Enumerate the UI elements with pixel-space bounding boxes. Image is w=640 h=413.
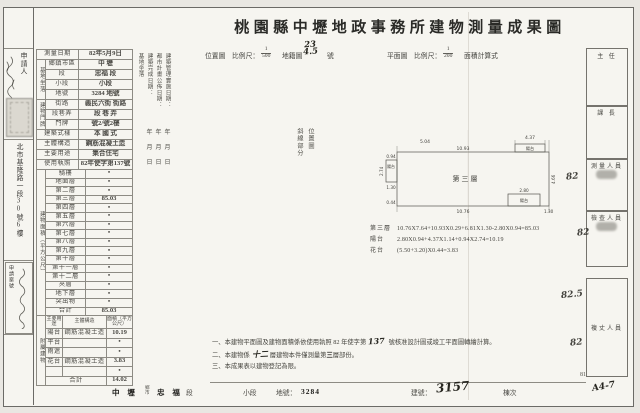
annex-row: 陽台鋼筋混凝土造10.19 <box>37 329 133 339</box>
group-label: 建物面積（平方公尺） <box>37 170 46 316</box>
ymd-char: 月 <box>145 142 154 151</box>
note-line: 二、本建物係十二層建物本件僅測量第三層部份。 <box>212 349 358 360</box>
info-row: 使用執照82年使字第137號 <box>37 160 133 170</box>
signoff-label: 測量人員 <box>587 161 627 170</box>
floor-row: 第四層• <box>37 204 133 213</box>
annex-structure: 鋼筋混凝土造 <box>63 357 107 367</box>
field-value: 號2/號2樓 <box>79 120 133 130</box>
footer-district: 中 壢 <box>112 387 138 398</box>
info-row: 建築式樣本 國 式 <box>37 130 133 140</box>
dim-bottom-right-width: 2.80 <box>519 188 529 193</box>
floor-plan-label: 平面圖 <box>387 50 407 60</box>
handwritten-sheet-number: 23 4.5 <box>303 42 319 57</box>
applicant-address: 北市基隆路一段30號6樓 <box>13 143 23 258</box>
info-row: 門牌號2/號2樓 <box>37 120 133 130</box>
scanned-survey-form: 桃園縣中壢地政事務所建物測量成果圖 位置圖 比例尺： 1 500 地籍圖 23 … <box>0 0 640 413</box>
dim-left-width: 0.94 <box>386 154 396 159</box>
floor-row: 第八層• <box>37 238 133 247</box>
annex-area: • <box>107 338 133 348</box>
scale-fraction-1: 1 500 <box>261 47 271 60</box>
ymd-char: 年 <box>163 127 172 136</box>
annex-row: 合計14.02 <box>37 376 133 386</box>
floor-row: 第十層• <box>37 255 133 264</box>
applicant-label: 申請人 <box>17 52 27 75</box>
handwritten-case-number <box>17 267 30 329</box>
dim-top: 10.93 <box>457 146 470 152</box>
date-field: 基地坐落 <box>136 53 145 171</box>
field-label: 段 <box>46 70 79 80</box>
note-text: 137 <box>366 335 387 346</box>
footer-building-no-label: 建號： <box>411 387 431 397</box>
info-row: 段忠福 段 <box>37 70 133 80</box>
floor-row: 地面層• <box>37 178 133 187</box>
floor-area-table: 建物面積（平方公尺）騎樓•地面層•第二層•第三層85.03第四層•第五層•第六層… <box>36 169 133 316</box>
floor-value: • <box>86 298 133 307</box>
floor-value: • <box>86 178 133 187</box>
floor-label: 第四層 <box>46 204 86 213</box>
calc-row: 花台(5.50+3.20)X0.44=3.83 <box>370 239 458 257</box>
floor-value: • <box>86 281 133 290</box>
info-row: 地號3284 地號 <box>37 90 133 100</box>
floor-value: 85.03 <box>86 195 133 204</box>
floor-label: 第三層 <box>46 195 86 204</box>
field-label: 主要用途 <box>37 150 79 160</box>
column-header: 主體構造 <box>63 316 107 329</box>
floor-label: 第五層 <box>46 212 86 221</box>
strip-rule <box>4 48 33 49</box>
area-formula-label: 面積計算式 <box>464 50 498 60</box>
field-value: 忠福 段 <box>79 70 133 80</box>
ymd-char: 日 <box>163 157 172 166</box>
ymd-char: 月 <box>163 142 172 151</box>
floor-label: 地下層 <box>46 290 86 299</box>
floor-value: • <box>86 204 133 213</box>
annex-structure <box>63 367 107 377</box>
balcony-left-label-1: 陽台 <box>387 163 395 169</box>
floor-value: • <box>86 170 133 179</box>
scale1-denominator: 500 <box>261 53 271 60</box>
calc-formula: (5.50+3.20)X0.44=3.83 <box>397 248 458 254</box>
field-label: 街路 <box>46 100 79 110</box>
annex-structure <box>63 338 107 348</box>
floor-value: • <box>86 238 133 247</box>
strip-rule <box>4 139 33 140</box>
footer-section: 忠 福 <box>157 387 183 398</box>
column-header: 面積（平方公尺） <box>107 316 133 329</box>
ymd-char: 年 <box>145 127 154 136</box>
floor-label: 騎樓 <box>46 170 86 179</box>
field-label: 主體構造 <box>37 140 79 150</box>
floor-label: 第十一層 <box>46 264 86 273</box>
note-text: 號核准設計圖或竣工平面圖轉繪計算。 <box>387 339 496 346</box>
date-field: 都市計畫公佈日期：年月日 <box>154 53 163 171</box>
strip-rule <box>4 334 33 335</box>
floor-label: 第二層 <box>46 187 86 196</box>
floor-label: 第六層 <box>46 221 86 230</box>
dim-bottom: 10.76 <box>457 209 470 215</box>
floor-row: 第五層• <box>37 212 133 221</box>
group-label: 建物門牌 <box>37 100 46 130</box>
info-row: 主要用途集合住宅 <box>37 150 133 160</box>
field-label: 測量日期 <box>37 50 79 60</box>
date-field: 建築管理實施日期：年月日 <box>163 53 172 171</box>
info-row: 主體構造鋼筋混凝土造 <box>37 140 133 150</box>
footer-land-no-label: 地號： <box>276 387 296 397</box>
floor-row: 第七層• <box>37 230 133 239</box>
floor-row: 第六層• <box>37 221 133 230</box>
footer-city: 市 <box>145 390 150 395</box>
info-row: 小段小段 <box>37 80 133 90</box>
location-note-left: 斜線部分 <box>295 128 304 157</box>
field-value: 中 壢 <box>79 60 133 70</box>
stamp-mark <box>596 222 617 231</box>
floor-value: • <box>86 212 133 221</box>
floor-value: • <box>86 187 133 196</box>
note-text: 二、本建物係 <box>212 352 250 359</box>
note-line: 三、本成果表以建物登記為限。 <box>212 361 300 370</box>
scale-label-1: 比例尺： <box>232 50 259 60</box>
calc-label: 花台 <box>370 245 397 254</box>
balcony-top-label: 陽台 <box>526 145 534 152</box>
handwritten-mark: 82 <box>566 171 580 182</box>
date-field-label: 建築管理實施日期： <box>164 53 172 108</box>
floor-label: 第十層 <box>46 255 86 264</box>
floor-row: 第九層• <box>37 247 133 256</box>
handwritten-mark: 82 <box>570 337 584 348</box>
annex-use: 花台 <box>46 357 63 367</box>
floor-row: 第三層85.03 <box>37 195 133 204</box>
dim-left-low: 1.30 <box>386 185 396 190</box>
case-number-box: 申請案號 <box>5 262 33 334</box>
floor-value: • <box>86 247 133 256</box>
floor-row: 建物面積（平方公尺）騎樓• <box>37 170 133 179</box>
signoff-label: 主 任 <box>587 51 627 60</box>
annex-label: 合計 <box>46 376 107 386</box>
floor-value: • <box>86 290 133 299</box>
cadastral-map-label: 地籍圖 <box>282 50 302 60</box>
floor-value: • <box>86 230 133 239</box>
annex-use: 陽台 <box>46 329 63 339</box>
field-label: 地號 <box>46 90 79 100</box>
footer-unit-label: 棟次 <box>503 387 517 397</box>
date-field: 建築完成日期：年月日 <box>145 53 154 171</box>
scale2-denominator: 200 <box>443 53 453 60</box>
sheet-number-bottom: 4.5 <box>303 47 318 58</box>
dim-right: 4.66 <box>551 174 556 184</box>
floor-label: 夾層 <box>46 281 86 290</box>
info-row: 測量日期82年5月9日 <box>37 50 133 60</box>
footer-land-no: 3284 <box>301 387 320 396</box>
signoff-box: 測量人員 <box>586 158 628 212</box>
field-label: 門牌 <box>46 120 79 130</box>
field-value: 本 國 式 <box>79 130 133 140</box>
floor-label: 第十二層 <box>46 273 86 282</box>
date-field-label: 都市計畫公佈日期： <box>155 53 163 108</box>
field-value: 鋼筋混凝土造 <box>79 140 133 150</box>
floor-plan-title: 第三層 <box>453 174 480 183</box>
floor-row: 第十一層• <box>37 264 133 273</box>
signoff-label: 複丈人員 <box>587 323 627 332</box>
footer-section-suffix: 段 <box>186 387 193 397</box>
annex-area: 14.02 <box>107 376 133 386</box>
note-text: 層部份。 <box>333 352 358 359</box>
annex-row: 平台• <box>37 338 133 348</box>
floor-label: 第八層 <box>46 238 86 247</box>
ymd-char: 日 <box>154 157 163 166</box>
note-text: 十二 <box>250 348 271 360</box>
stamp-mark <box>596 170 617 179</box>
field-label: 段巷弄 <box>46 110 79 120</box>
form-title: 桃園縣中壢地政事務所建物測量成果圖 <box>205 16 595 37</box>
dim-left-height: 2.74 <box>379 166 384 176</box>
annex-row: 雨遮• <box>37 348 133 358</box>
sheet-number-suffix: 號 <box>327 50 334 60</box>
signoff-label: 課 長 <box>587 108 627 117</box>
note-text: 層建物本件僅測量第 <box>270 352 327 359</box>
annex-structure <box>63 348 107 358</box>
balcony-bottom-label: 陽台 <box>520 197 528 204</box>
column-header: 主要用途 <box>46 316 63 329</box>
signoff-box: 檢查人員 <box>586 210 628 267</box>
floor-row: 第十二層• <box>37 273 133 282</box>
dim-top-left: 5.04 <box>420 139 430 145</box>
info-table: 測量日期82年5月9日基地坐落鄉鎮市區中 壢段忠福 段小段小段地號3284 地號… <box>36 49 133 170</box>
field-value: 段 巷 弄 <box>79 110 133 120</box>
dim-bottom-right-height: 1.30 <box>544 209 554 214</box>
date-field-label: 建築完成日期： <box>146 53 154 96</box>
group-label: 基地坐落 <box>37 60 46 100</box>
note-text: 三、本成果表以建物登記為限。 <box>212 363 300 370</box>
signoff-box: 主 任 <box>586 48 628 107</box>
scale-label-2: 比例尺： <box>414 50 441 60</box>
applicant-seal-stamp <box>6 98 33 137</box>
footer-township-city: 鄉 市 <box>145 385 150 396</box>
floor-value: • <box>86 273 133 282</box>
floor-plan-drawing: 5.04 10.93 4.37 陽台 0.94 2.74 陽台 1.30 0.4… <box>378 130 568 218</box>
floor-row: 突出物• <box>37 298 133 307</box>
dim-top-right: 4.37 <box>525 135 535 141</box>
floor-label: 第九層 <box>46 247 86 256</box>
floor-row: 夾層• <box>37 281 133 290</box>
dim-left-bottom: 0.44 <box>386 200 396 205</box>
location-note-right: 位置圖 <box>306 128 315 150</box>
note-line: 一、本建物平面圖及建物面積係依使用執照 82 年使字第137 號核准設計圖或竣工… <box>212 336 496 346</box>
ymd-char: 月 <box>154 142 163 151</box>
floor-row: 第二層• <box>37 187 133 196</box>
field-value: 82年5月9日 <box>79 50 133 60</box>
ymd-char: 日 <box>145 157 154 166</box>
strip-rule <box>4 260 33 261</box>
footer-small-section: 小段 <box>243 387 257 397</box>
signoff-box: 課 長 <box>586 105 628 160</box>
handwritten-mark: 82 <box>577 227 591 238</box>
floor-label: 地面層 <box>46 178 86 187</box>
handwritten-building-no: 3157 <box>435 379 469 396</box>
annex-row: • <box>37 367 133 377</box>
footer-rule <box>210 382 586 383</box>
annex-structure: 鋼筋混凝土造 <box>63 329 107 339</box>
field-label: 鄉鎮市區 <box>46 60 79 70</box>
field-value: 義民六街 街路 <box>79 100 133 110</box>
annex-building-table: 附屬建物主要用途主體構造面積（平方公尺）陽台鋼筋混凝土造10.19平台•雨遮•花… <box>36 315 133 386</box>
signoff-label: 檢查人員 <box>587 213 627 222</box>
field-value: 小段 <box>79 80 133 90</box>
date-field-label: 基地坐落 <box>137 53 145 77</box>
signoff-box: 複丈人員 <box>586 278 628 377</box>
group-label: 附屬建物 <box>37 316 46 386</box>
scale-fraction-2: 1 200 <box>443 47 453 60</box>
info-row: 建物門牌街路義民六街 街路 <box>37 100 133 110</box>
page-number: 81 <box>580 372 586 378</box>
field-value: 3284 地號 <box>79 90 133 100</box>
ymd-char: 年 <box>154 127 163 136</box>
field-value: 集合住宅 <box>79 150 133 160</box>
note-text: 一、本建物平面圖及建物面積係依使用執照 82 年使字第 <box>212 339 366 346</box>
case-number-label: 申請案號 <box>7 265 14 289</box>
annex-header-row: 附屬建物主要用途主體構造面積（平方公尺） <box>37 316 133 329</box>
location-map-label: 位置圖 <box>205 50 225 60</box>
field-label: 使用執照 <box>37 160 79 170</box>
annex-area: • <box>107 367 133 377</box>
strip-divider <box>33 7 34 405</box>
annex-area: 3.83 <box>107 357 133 367</box>
field-value: 82年使字第137號 <box>79 160 133 170</box>
floor-label: 突出物 <box>46 298 86 307</box>
info-row: 基地坐落鄉鎮市區中 壢 <box>37 60 133 70</box>
floor-label: 第七層 <box>46 230 86 239</box>
annex-area: 10.19 <box>107 329 133 339</box>
field-label: 建築式樣 <box>37 130 79 140</box>
info-row: 段巷弄段 巷 弄 <box>37 110 133 120</box>
annex-area: • <box>107 348 133 358</box>
annex-use <box>46 367 63 377</box>
floor-value: • <box>86 264 133 273</box>
annex-use: 平台 <box>46 338 63 348</box>
annex-use: 雨遮 <box>46 348 63 358</box>
annex-row: 花台鋼筋混凝土造3.83 <box>37 357 133 367</box>
floor-value: • <box>86 221 133 230</box>
field-label: 小段 <box>46 80 79 90</box>
floor-value: • <box>86 255 133 264</box>
floor-row: 地下層• <box>37 290 133 299</box>
